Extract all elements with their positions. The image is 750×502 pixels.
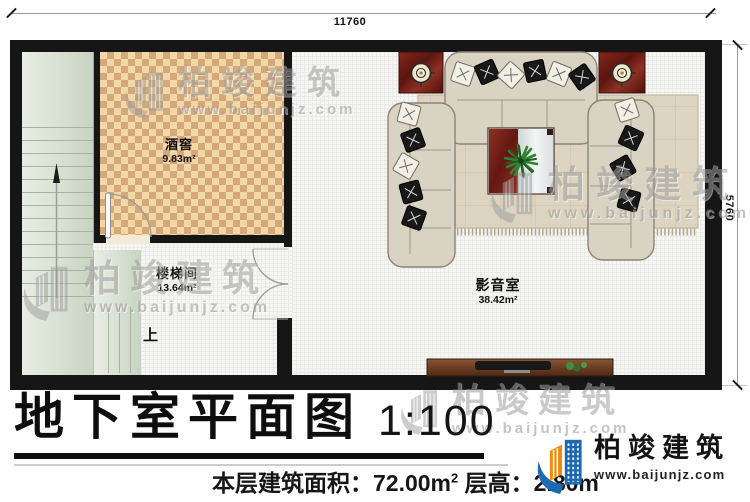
room-area: 13.64m² <box>127 283 227 294</box>
right-dimension-line <box>737 45 738 385</box>
wine-cellar-label: 酒窖 9.83m² <box>129 138 229 165</box>
title-underline <box>14 453 484 459</box>
tv-icon <box>475 361 551 370</box>
brand-name: 柏竣建筑 <box>594 434 730 464</box>
title-underline-thin <box>14 464 508 466</box>
brand-logo-icon <box>534 434 590 496</box>
floor-plan: 酒窖 9.83m² 楼梯间 13.64m² 影音室 38.42m² 上 柏竣建筑… <box>10 40 722 390</box>
right-dimension-label: 5760 <box>723 193 735 223</box>
brand-website: www.baijunjz.com <box>594 467 730 482</box>
door <box>106 193 152 238</box>
top-dimension-label: 11760 <box>310 16 390 28</box>
floorplan-page: 11760 5760 <box>0 0 750 502</box>
area-summary-text: 本层建筑面积：72.00m <box>212 470 451 496</box>
stairs-up-label: 上 <box>143 324 158 345</box>
dimension-extension <box>719 44 747 45</box>
room-area: 38.42m² <box>448 295 548 306</box>
stairwell-label: 楼梯间 13.64m² <box>127 267 227 294</box>
stairs-up-arrow-icon <box>53 163 60 298</box>
dimension-extension <box>719 385 747 386</box>
drawing-scale: 1:100 <box>378 400 496 443</box>
room-name: 酒窖 <box>129 138 229 151</box>
room-name: 影音室 <box>448 278 548 292</box>
media-room-label: 影音室 38.42m² <box>448 278 548 306</box>
room-area: 9.83m² <box>129 154 229 165</box>
double-door <box>253 249 288 319</box>
sofa-left <box>388 103 455 267</box>
tv-cabinet <box>427 359 613 376</box>
brand-logo: 柏竣建筑 www.baijunjz.com <box>534 434 730 496</box>
top-dimension-line <box>12 13 716 14</box>
room-name: 楼梯间 <box>127 267 227 280</box>
drawing-title: 地下室平面图 <box>14 392 362 442</box>
